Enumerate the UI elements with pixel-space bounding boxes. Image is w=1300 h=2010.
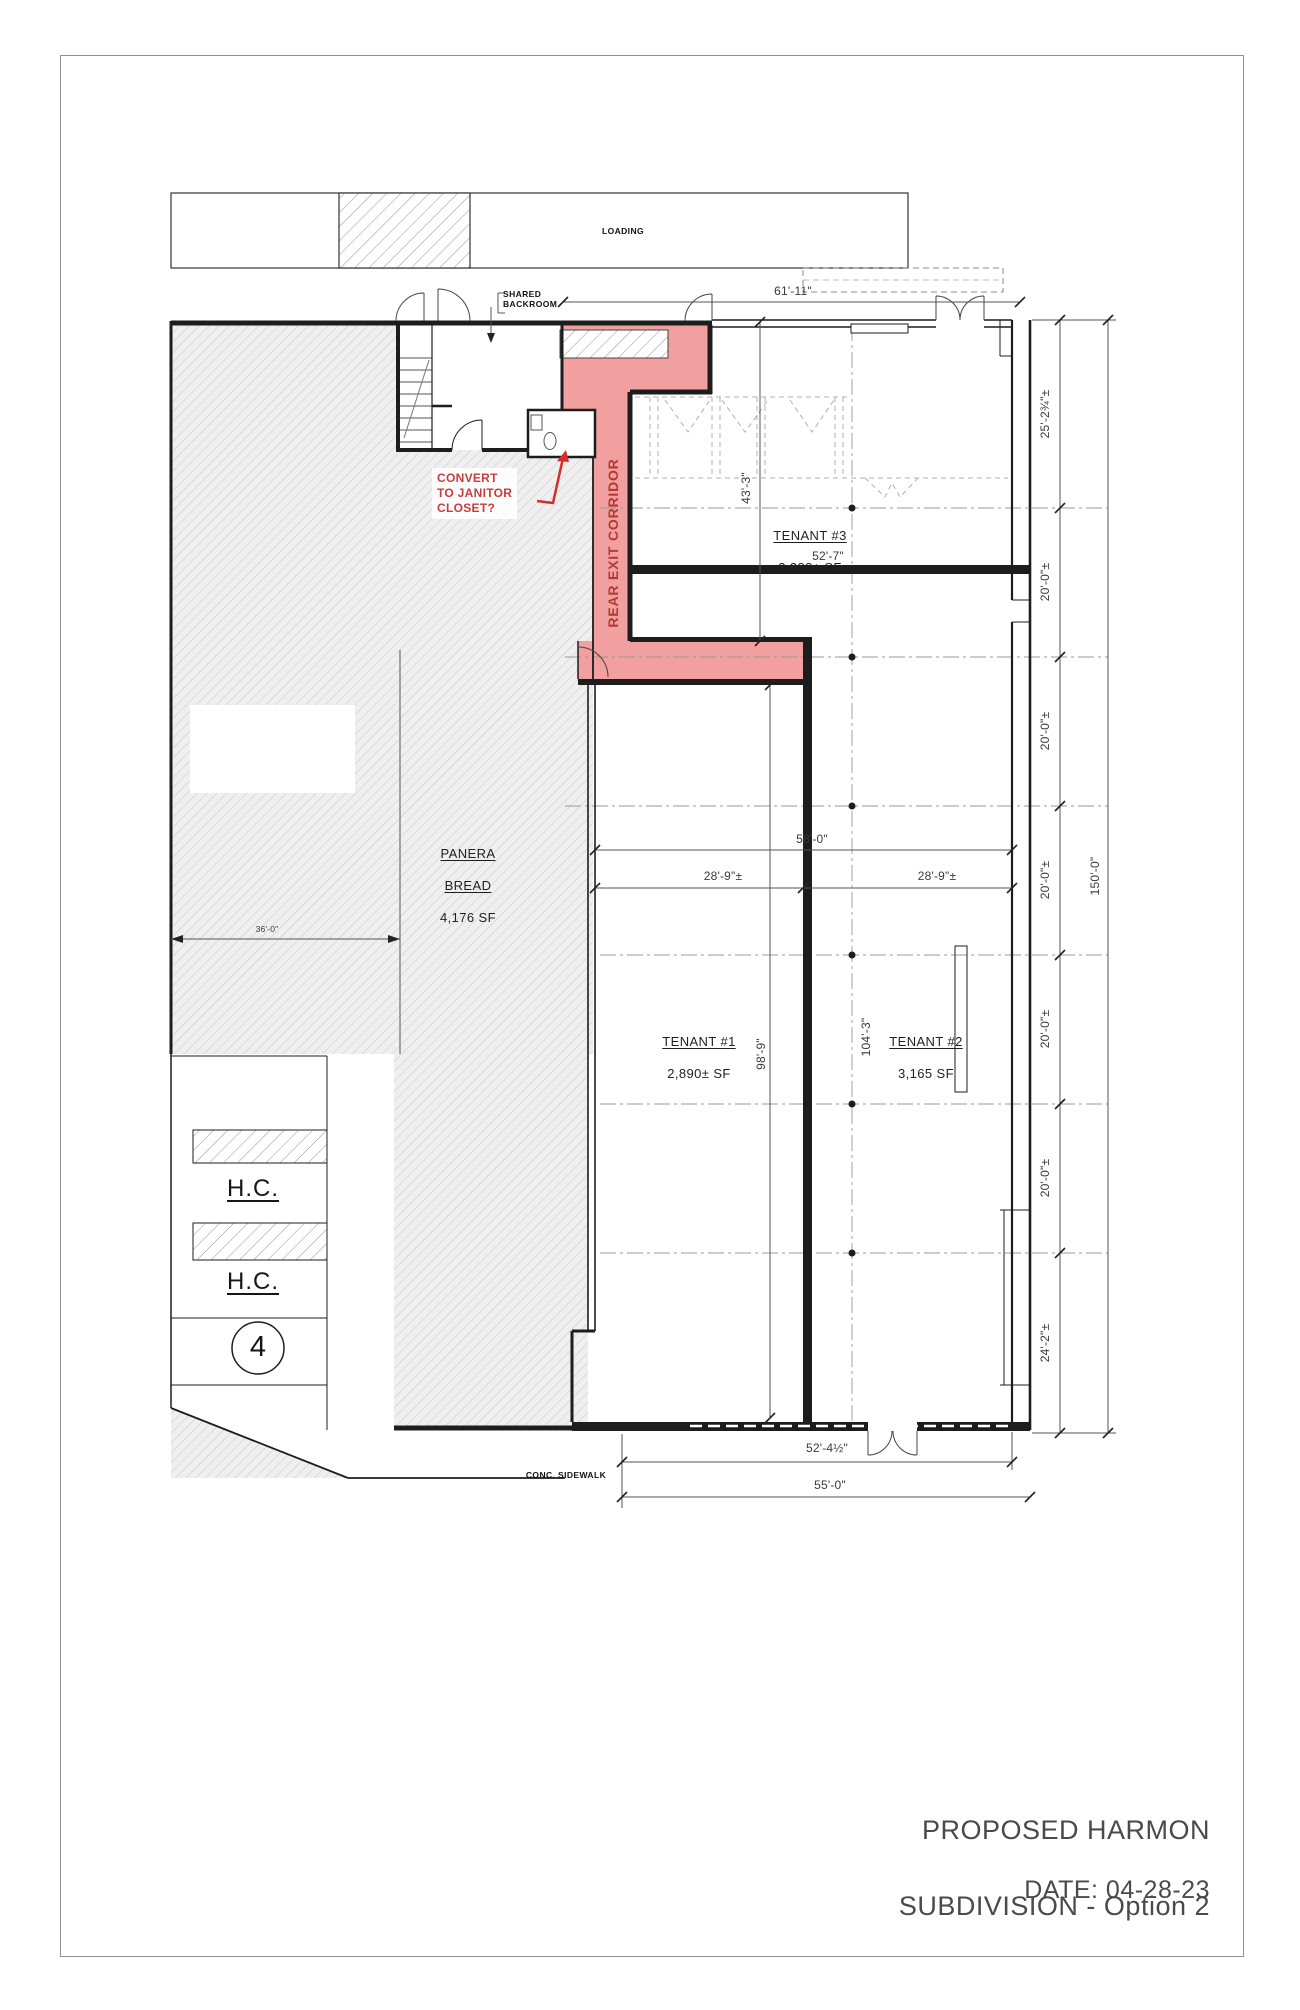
rear-exit-corridor-label: REAR EXIT CORRIDOR (605, 428, 621, 658)
dim-top-overall: 61'-11" (743, 284, 843, 298)
panera-name-2: BREAD (445, 878, 492, 893)
tenant1-label: TENANT #1 2,890± SF (634, 1018, 764, 1082)
dim-sidewalk-width: 55'-0" (790, 1478, 870, 1492)
dim-rear-width: 58'-0" (772, 832, 852, 846)
tenant3-name: TENANT #3 (773, 528, 846, 543)
tenant2-area: 3,165 SF (898, 1066, 954, 1081)
tenant1-name: TENANT #1 (662, 1034, 735, 1049)
plan-sheet: LOADING SHARED BACKROOM 61'-11" CONVERT … (0, 0, 1300, 2010)
dim-tenant2-depth: 104'-3" (859, 997, 873, 1077)
backroom-interior (432, 406, 482, 450)
drawing-title-line1: PROPOSED HARMON (922, 1815, 1210, 1845)
stair (398, 321, 432, 450)
convert-janitor-note: CONVERT TO JANITOR CLOSET? (432, 468, 517, 519)
hc-stall-upper-label: H.C. (203, 1175, 303, 1203)
toilet-room (528, 410, 595, 457)
dim-chain-3: 20'-0"± (1038, 686, 1054, 776)
walls-thick (572, 565, 1030, 1431)
dim-chain-4: 20'-0"± (1038, 835, 1054, 925)
loading-dock-strip (171, 193, 1003, 292)
tenant2-name: TENANT #2 (889, 1034, 962, 1049)
dim-tenant2-width: 28'-9"± (897, 869, 977, 883)
tenant3-dashed-fixtures (635, 397, 1008, 497)
dim-tenant1-width: 28'-9"± (683, 869, 763, 883)
panera-label: PANERA BREAD 4,176 SF (440, 830, 496, 926)
dim-panera-width: 36'-0" (237, 922, 297, 936)
tenant2-label: TENANT #2 3,165 SF (861, 1018, 991, 1082)
panera-name-1: PANERA (441, 846, 496, 861)
tenant3-label: TENANT #3 2,288± SF (745, 512, 875, 576)
drawing-date: DATE: 04-28-23 (700, 1876, 1210, 1905)
parking-count-label: 4 (238, 1331, 278, 1364)
hc-stall-lower-label: H.C. (203, 1268, 303, 1296)
dim-right-total: 150'-0" (1088, 831, 1104, 921)
panera-area: 4,176 SF (440, 910, 496, 925)
dim-chain-2: 20'-0"± (1038, 537, 1054, 627)
dim-tenant3-depth: 43'-3" (739, 453, 753, 523)
floor-plan-drawing (0, 0, 1300, 2010)
hatch-existing-building (171, 323, 593, 1478)
dim-chain-6: 20'-0"± (1038, 1133, 1054, 1223)
dim-tenant3-width: 52'-7" (788, 549, 868, 563)
reference-lines (565, 325, 1108, 1422)
loading-label: LOADING (573, 226, 673, 236)
tenant1-area: 2,890± SF (667, 1066, 731, 1081)
dim-chain-5: 20'-0"± (1038, 984, 1054, 1074)
conc-sidewalk-label: CONC. SIDEWALK (501, 1470, 631, 1480)
dim-storefront-width: 52'-4½" (777, 1441, 877, 1455)
dim-chain-1: 25'-2¾"± (1038, 369, 1054, 459)
dim-chain-7: 24'-2"± (1038, 1298, 1054, 1388)
dim-tenant1-depth: 98'-9" (754, 1019, 768, 1089)
corridor-highlight (560, 325, 803, 679)
shared-backroom-label: SHARED BACKROOM (503, 289, 573, 309)
